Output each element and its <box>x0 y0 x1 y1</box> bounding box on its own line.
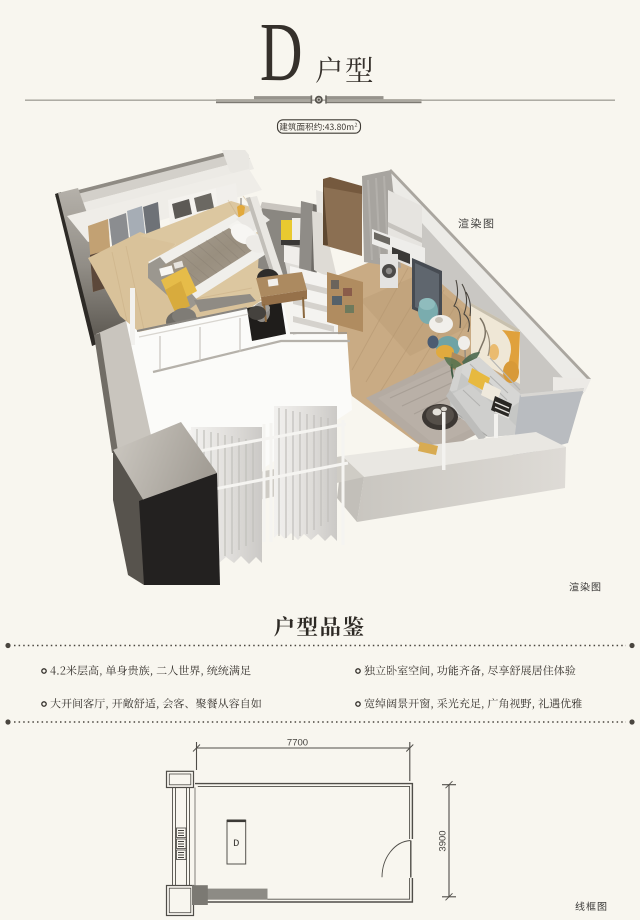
svg-text:D: D <box>233 838 239 850</box>
svg-text:3900: 3900 <box>438 830 449 851</box>
svg-text:7700: 7700 <box>287 738 308 749</box>
